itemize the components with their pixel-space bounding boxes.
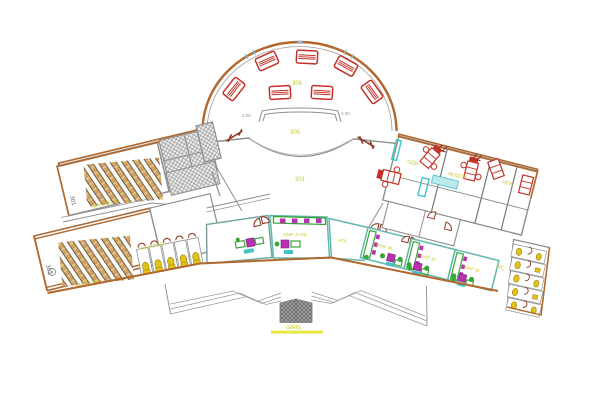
svg-text:3.05: 3.05 — [341, 111, 350, 116]
svg-text:305: 305 — [290, 130, 301, 136]
svg-text:301: 301 — [295, 177, 306, 183]
svg-text:306: 306 — [292, 81, 303, 87]
svg-text:HOL: HOL — [338, 238, 348, 243]
svg-text:GİRİŞ: GİRİŞ — [286, 324, 301, 331]
svg-text:SINIF 30 kişi: SINIF 30 kişi — [283, 232, 307, 237]
svg-text:3.05: 3.05 — [242, 113, 251, 118]
